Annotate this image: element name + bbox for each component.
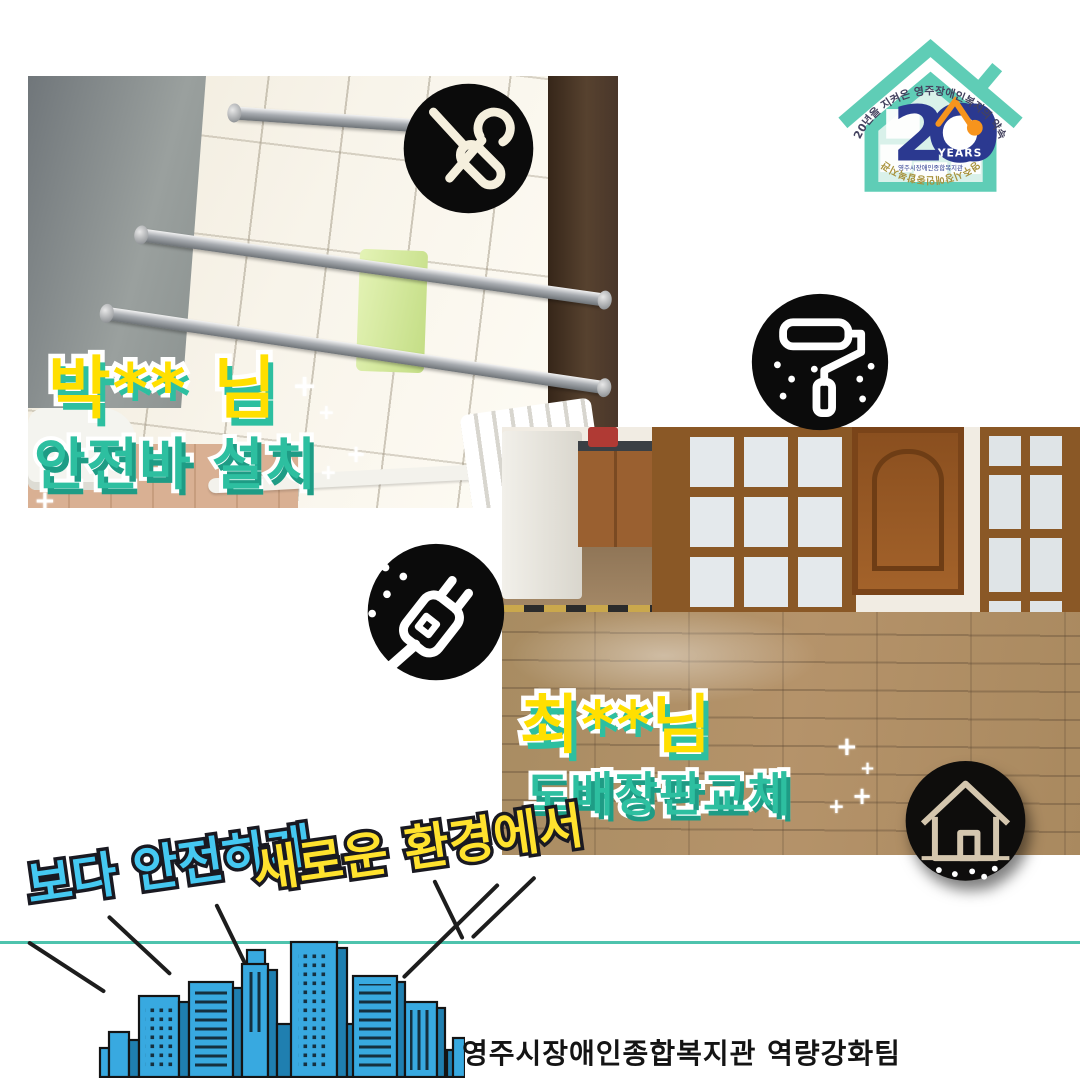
tools-icon — [401, 81, 536, 216]
sparkle: + — [292, 372, 317, 402]
client-name-1: 박** 님 — [48, 356, 278, 424]
city-skyline-illustration — [95, 926, 465, 1078]
service-name-1: 안전바 설치 — [34, 438, 317, 494]
house-icon — [899, 757, 1032, 890]
ray-line — [471, 875, 537, 939]
poster-canvas: 20 YEARS 영주시장애인종합복지관 20년을 지켜온 영주장애인복지의 약… — [0, 0, 1080, 1080]
sparkle: + — [828, 796, 845, 816]
logo-years-label: YEARS — [937, 146, 983, 159]
kitchen-item-red — [588, 427, 618, 447]
anniversary-logo: 20 YEARS 영주시장애인종합복지관 20년을 지켜온 영주장애인복지의 약… — [835, 28, 1027, 200]
organization-team-name: 영주시장애인종합복지관 역량강화팀 — [462, 1032, 901, 1072]
logo-orange-dot — [967, 120, 983, 136]
client-name-2: 최**님 — [520, 694, 713, 758]
slogan-new-environment: 새로운 환경에서 — [250, 801, 586, 896]
wooden-door — [852, 427, 964, 595]
door-panel — [872, 449, 944, 571]
sparkle: + — [836, 734, 858, 760]
frosted-panes — [690, 437, 846, 607]
sparkle: + — [860, 760, 875, 778]
plug-icon — [341, 529, 519, 707]
glass-sliding-door — [680, 427, 856, 617]
sparkle: + — [34, 488, 56, 514]
paint-roller-icon — [749, 291, 891, 433]
sparkle: + — [346, 442, 366, 466]
sparkle: + — [852, 784, 872, 808]
sparkle: + — [318, 402, 335, 422]
sparkle: + — [320, 462, 337, 482]
